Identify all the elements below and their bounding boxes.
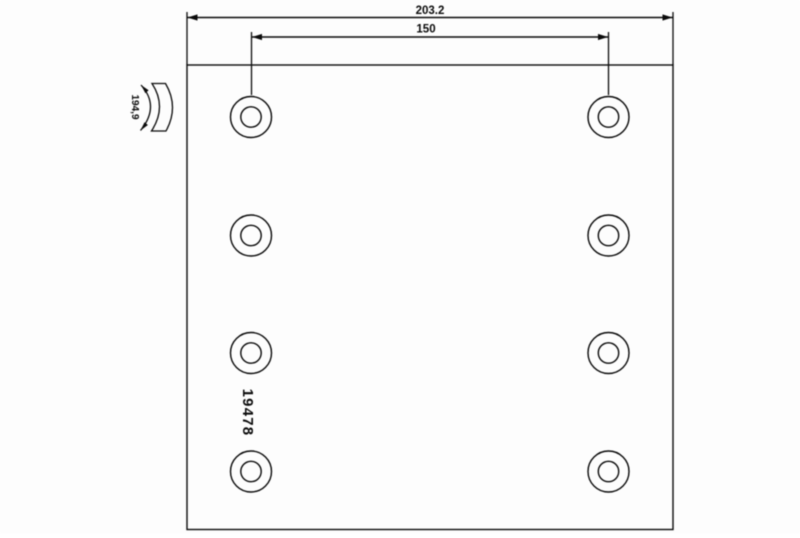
svg-text:150: 150 <box>416 24 435 36</box>
svg-text:203.2: 203.2 <box>416 5 445 17</box>
svg-text:19478: 19478 <box>239 389 256 437</box>
svg-text:194,9: 194,9 <box>129 94 140 119</box>
